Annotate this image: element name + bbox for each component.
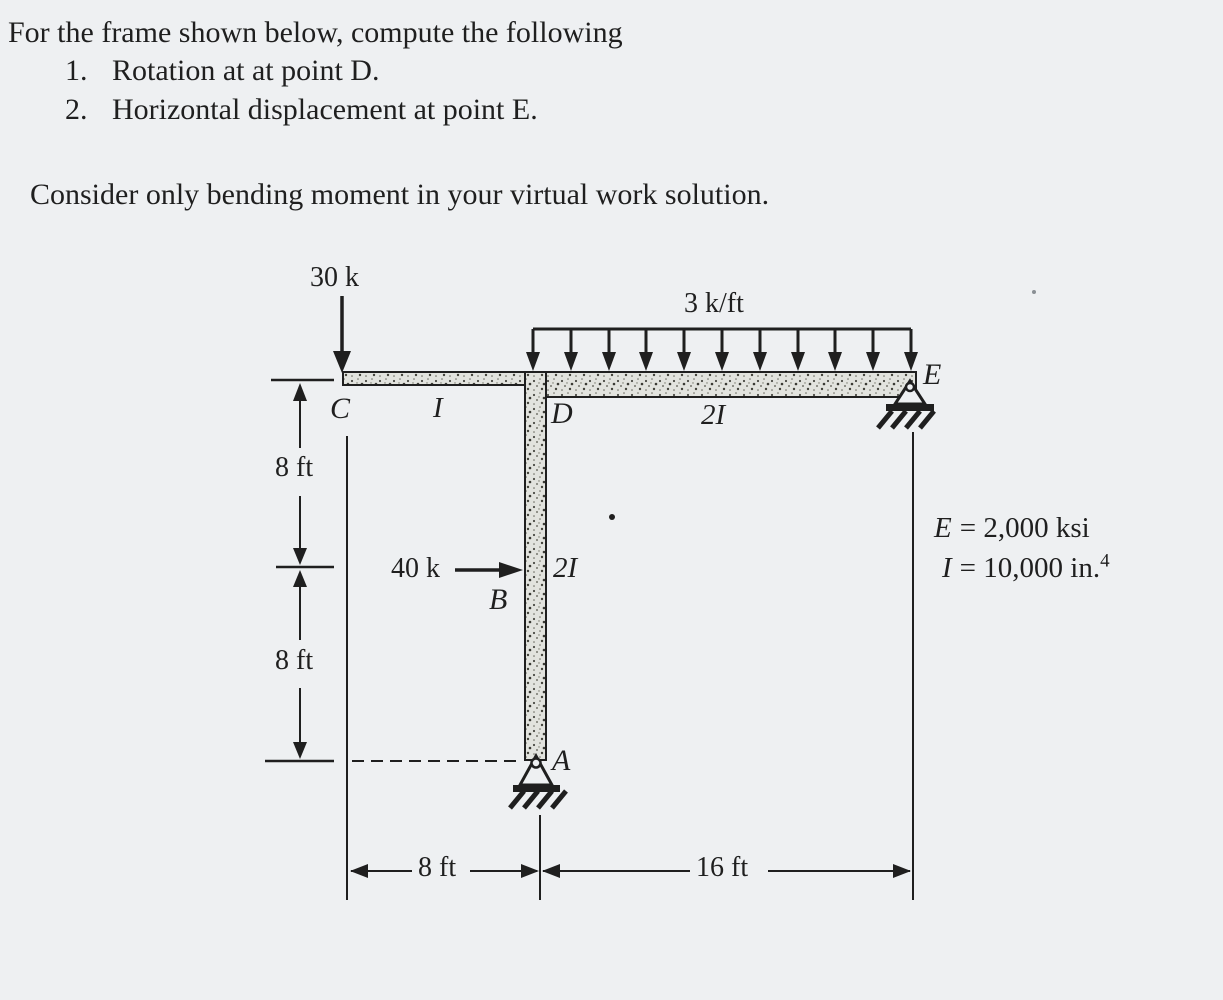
node-label-d: D <box>551 397 573 431</box>
dim-label-bottom-right: 16 ft <box>696 852 748 884</box>
material-properties: E= 2,000 ksi I= 10,000 in.4 <box>934 512 1110 592</box>
side-load-40k-arrow <box>455 562 523 578</box>
left-dimension-chain <box>265 380 334 761</box>
extension-lines <box>347 432 913 900</box>
node-label-a: A <box>552 744 570 778</box>
inertia-exponent: 4 <box>1100 550 1110 571</box>
node-label-e: E <box>923 358 941 392</box>
point-load-30k-arrow <box>333 296 351 373</box>
scan-speck <box>609 290 1036 520</box>
dim-label-bottom-left: 8 ft <box>418 852 456 884</box>
load-label-40k: 40 k <box>391 553 440 585</box>
inertia-value: = 10,000 in. <box>960 552 1100 584</box>
distributed-load-arrows <box>526 329 918 371</box>
modulus-line: E= 2,000 ksi <box>934 512 1110 545</box>
dim-label-left-upper: 8 ft <box>275 452 313 484</box>
column-a-d <box>525 372 546 760</box>
scanned-problem-page: For the frame shown below, compute the f… <box>0 0 1223 1000</box>
load-label-3kft: 3 k/ft <box>684 288 744 320</box>
modulus-value: = 2,000 ksi <box>960 512 1090 544</box>
member-label-beam-right: 2I <box>701 399 725 432</box>
modulus-symbol: E <box>934 512 952 545</box>
node-label-b: B <box>489 583 507 617</box>
member-label-beam-left: I <box>433 392 443 425</box>
frame-diagram <box>0 0 1223 1000</box>
dim-label-left-lower: 8 ft <box>275 645 313 677</box>
beam-d-e <box>525 372 916 397</box>
inertia-symbol: I <box>942 552 952 585</box>
load-label-30k: 30 k <box>310 262 359 294</box>
node-label-c: C <box>330 392 350 426</box>
inertia-line: I= 10,000 in.4 <box>934 552 1110 585</box>
member-label-column: 2I <box>553 552 577 585</box>
beam-c-d <box>343 372 525 385</box>
